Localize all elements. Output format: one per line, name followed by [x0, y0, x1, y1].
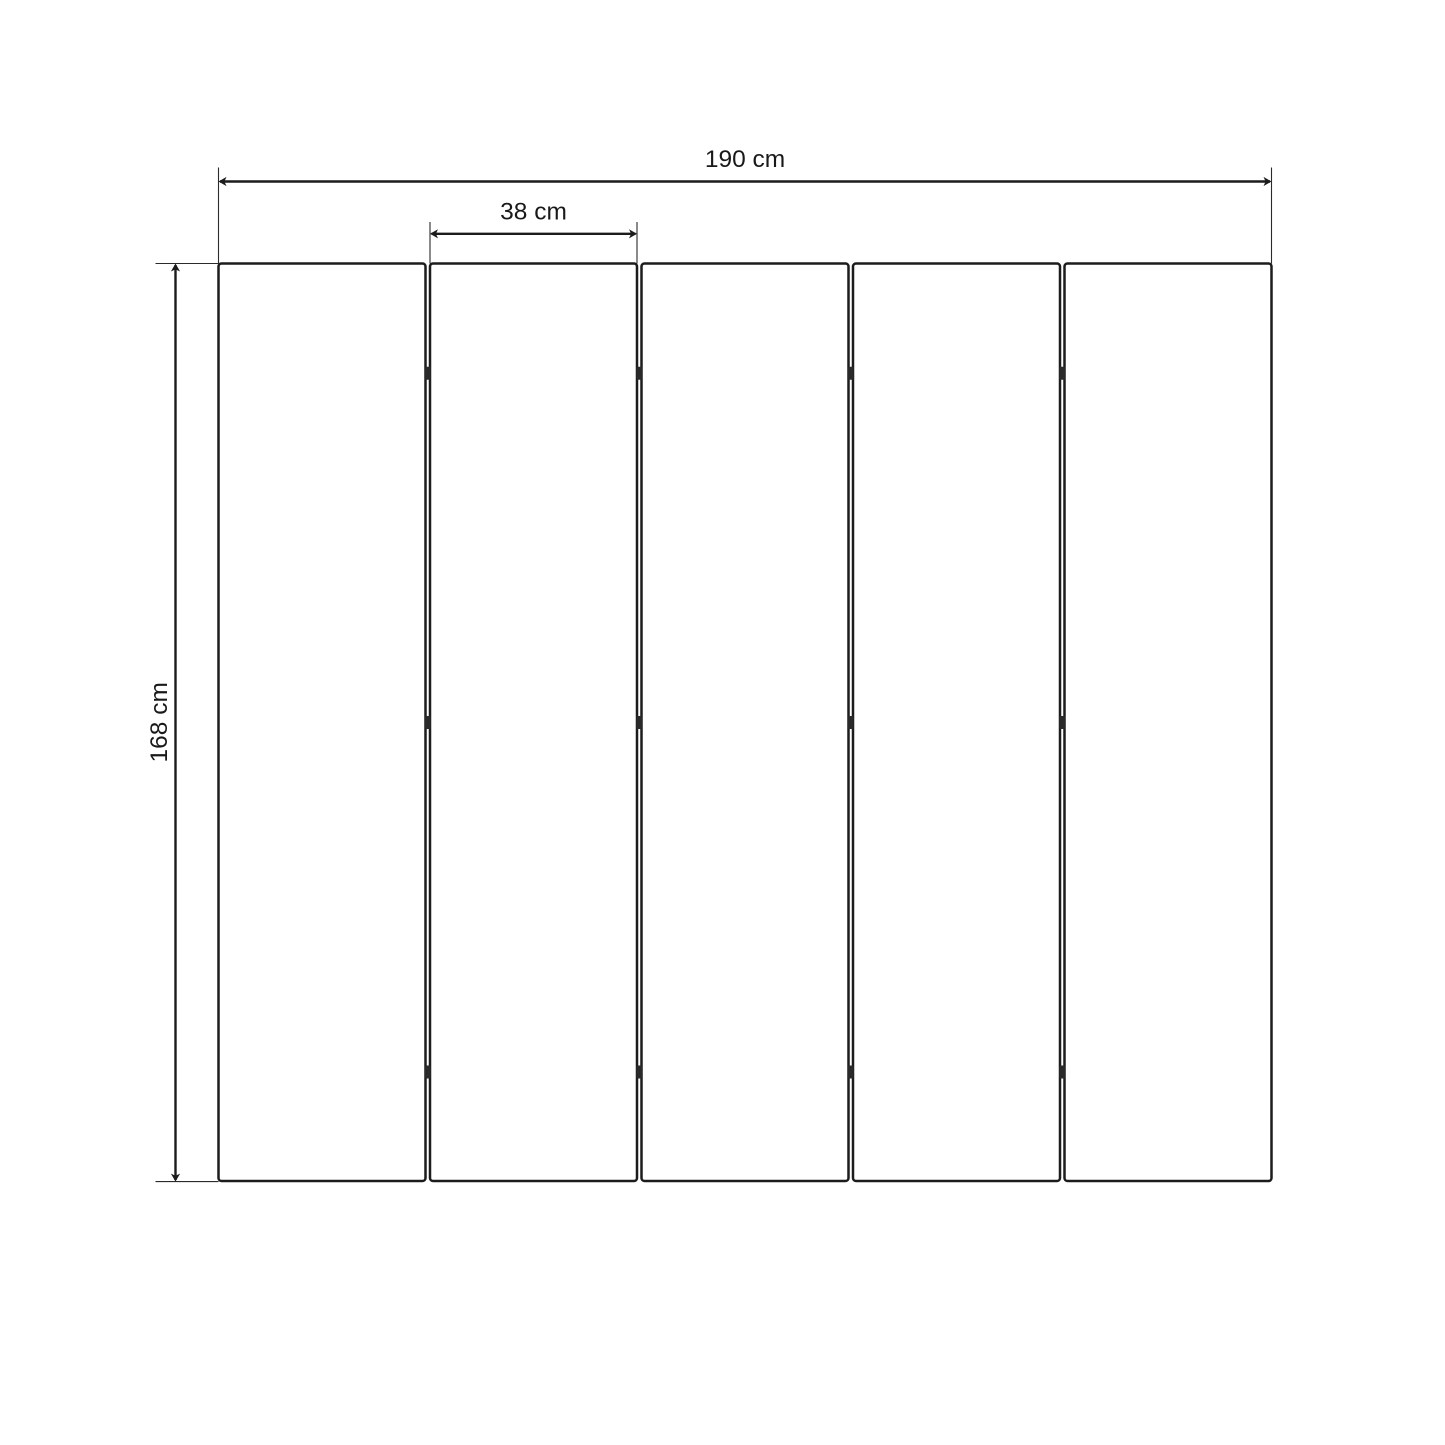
svg-text:168 cm: 168 cm [146, 682, 173, 762]
svg-text:190 cm: 190 cm [705, 146, 785, 173]
svg-text:38 cm: 38 cm [500, 198, 567, 225]
